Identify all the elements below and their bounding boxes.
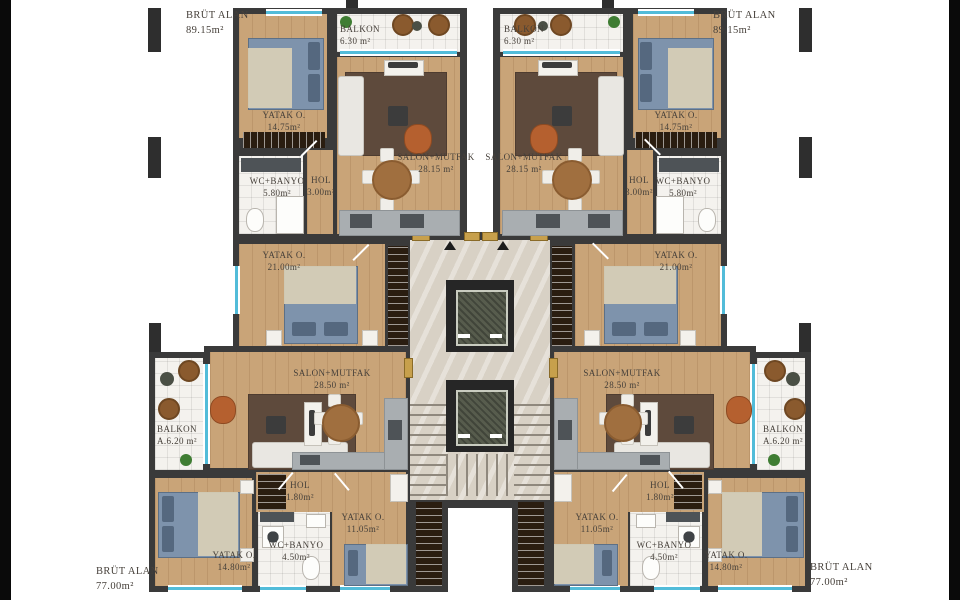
room-label-living-bl: SALON+MUTFAK 28.50 m² bbox=[286, 368, 378, 391]
window bbox=[233, 266, 240, 314]
room-label-bath-tr: WC+BANYO 5.80m² bbox=[650, 176, 716, 199]
armchair bbox=[210, 396, 236, 424]
balcony-chair bbox=[158, 398, 180, 420]
room-name: YATAK O. bbox=[340, 512, 386, 524]
room-label-bath-bl: WC+BANYO 4.50m² bbox=[262, 540, 330, 563]
shaft-wall bbox=[461, 8, 467, 234]
room-label-hall-bl: HOL 1.80m² bbox=[279, 480, 321, 503]
plant bbox=[608, 16, 620, 28]
room-name: YATAK O. bbox=[574, 512, 620, 524]
bed-blanket bbox=[722, 492, 762, 556]
gross-area-label-top-right: BRÜT ALAN 89.15m² bbox=[713, 8, 803, 38]
wardrobe bbox=[388, 246, 408, 346]
elevator-door-mark bbox=[458, 434, 470, 438]
floor-plan: BRÜT ALAN 89.15m² BRÜT ALAN 89.15m² BRÜT… bbox=[0, 0, 960, 600]
window-balcony-door bbox=[340, 49, 457, 56]
room-area: 6.30 m² bbox=[504, 36, 564, 48]
room-area: 1.80m² bbox=[279, 492, 321, 504]
sofa bbox=[598, 76, 624, 156]
room-area: 11.05m² bbox=[574, 524, 620, 536]
gross-area-value: 77.00m² bbox=[96, 579, 186, 594]
room-label-balcony-tl: BALKON 6.30 m² bbox=[340, 24, 400, 47]
window bbox=[654, 585, 700, 592]
wall-stub bbox=[149, 323, 161, 353]
room-label-hall-tr: HOL 3.00m² bbox=[621, 175, 657, 198]
room-area: 5.80m² bbox=[650, 188, 716, 200]
room-area: 14.80m² bbox=[696, 562, 756, 574]
room-label-living-tr: SALON+MUTFAK 28.15 m² bbox=[478, 152, 570, 175]
room-name: WC+BANYO bbox=[630, 540, 698, 552]
room-name: SALON+MUTFAK bbox=[286, 368, 378, 380]
room-name: SALON+MUTFAK bbox=[576, 368, 668, 380]
room-name: WC+BANYO bbox=[650, 176, 716, 188]
room-area: 28.50 m² bbox=[576, 380, 668, 392]
window bbox=[340, 585, 390, 592]
stairs-right-flight bbox=[514, 404, 550, 496]
room-area: 28.50 m² bbox=[286, 380, 378, 392]
room-area: A.6.20 m² bbox=[754, 436, 812, 448]
entry-door-threshold bbox=[404, 358, 413, 378]
wardrobe bbox=[416, 502, 442, 586]
cooktop bbox=[640, 455, 660, 465]
elevator-door-mark bbox=[490, 334, 502, 338]
plant bbox=[180, 454, 192, 466]
room-name: BALKON bbox=[340, 24, 400, 36]
room-name: SALON+MUTFAK bbox=[478, 152, 570, 164]
balcony-table bbox=[786, 372, 800, 386]
room-label-hall-tl: HOL 3.00m² bbox=[303, 175, 339, 198]
room-area: 1.80m² bbox=[639, 492, 681, 504]
room-name: YATAK O. bbox=[637, 110, 715, 122]
gross-area-title: BRÜT ALAN bbox=[96, 564, 186, 579]
room-label-balcony-br: BALKON A.6.20 m² bbox=[754, 424, 812, 447]
room-area: 11.05m² bbox=[340, 524, 386, 536]
wardrobe bbox=[552, 246, 572, 346]
nightstand bbox=[680, 330, 696, 346]
room-name: YATAK O. bbox=[245, 110, 323, 122]
room-label-bath-br: WC+BANYO 4.50m² bbox=[630, 540, 698, 563]
bed-blanket bbox=[366, 544, 406, 584]
kitchen-sink bbox=[388, 420, 402, 440]
window bbox=[718, 585, 792, 592]
sofa bbox=[338, 76, 364, 156]
bed-pillow bbox=[786, 526, 798, 552]
entry-door-threshold bbox=[482, 232, 498, 241]
window-balcony-door bbox=[203, 364, 210, 464]
nightstand bbox=[584, 330, 600, 346]
armchair bbox=[530, 124, 558, 154]
room-area: 4.50m² bbox=[262, 552, 330, 564]
room-name: HOL bbox=[639, 480, 681, 492]
coffee-table bbox=[552, 106, 572, 126]
kitchen-sink bbox=[558, 420, 572, 440]
room-area: 14.80m² bbox=[204, 562, 264, 574]
armchair bbox=[404, 124, 432, 154]
window bbox=[638, 9, 694, 16]
bed-pillow bbox=[602, 550, 612, 576]
shaft-wall bbox=[493, 8, 499, 234]
room-name: SALON+MUTFAK bbox=[390, 152, 482, 164]
bath-sink bbox=[636, 514, 656, 528]
bed-pillow bbox=[640, 42, 652, 70]
wall-stub bbox=[799, 137, 812, 178]
room-area: 5.80m² bbox=[244, 188, 310, 200]
gross-area-label-bottom-right: BRÜT ALAN 77.00m² bbox=[810, 560, 900, 590]
stairs-bottom-flight bbox=[446, 454, 514, 496]
room-label-hall-br: HOL 1.80m² bbox=[639, 480, 681, 503]
bath-vanity bbox=[260, 512, 294, 522]
bath-vanity bbox=[241, 158, 301, 172]
room-label-bedroom2-tl: YATAK O. 21.00m² bbox=[254, 250, 314, 273]
nightstand bbox=[240, 480, 254, 494]
coffee-table bbox=[674, 416, 694, 434]
bed-pillow bbox=[162, 526, 174, 552]
shower bbox=[656, 196, 684, 234]
gross-area-label-bottom-left: BRÜT ALAN 77.00m² bbox=[96, 564, 186, 594]
gross-area-title: BRÜT ALAN bbox=[810, 560, 900, 575]
armchair bbox=[726, 396, 752, 424]
room-name: BALKON bbox=[754, 424, 812, 436]
room-label-bedroom-large-br: YATAK O. 14.80m² bbox=[696, 550, 756, 573]
bed-pillow bbox=[292, 322, 316, 336]
room-label-balcony-bl: BALKON A.6.20 m² bbox=[148, 424, 206, 447]
balcony-table bbox=[160, 372, 174, 386]
room-label-bedroom-tr: YATAK O. 14.75m² bbox=[637, 110, 715, 133]
room-name: HOL bbox=[303, 175, 339, 187]
wall-stub bbox=[148, 8, 161, 52]
bed-pillow bbox=[640, 74, 652, 102]
room-area: 28.15 m² bbox=[390, 164, 482, 176]
nightstand bbox=[708, 480, 722, 494]
gross-area-title: BRÜT ALAN bbox=[713, 8, 803, 23]
cooktop bbox=[400, 214, 424, 228]
cooktop bbox=[536, 214, 560, 228]
room-area: 14.75m² bbox=[637, 122, 715, 134]
bed-blanket bbox=[198, 492, 238, 556]
toilet bbox=[698, 208, 716, 232]
room-name: YATAK O. bbox=[646, 250, 706, 262]
balcony-chair bbox=[428, 14, 450, 36]
direction-arrow-up bbox=[497, 241, 509, 250]
bed-blanket bbox=[668, 48, 712, 108]
room-name: YATAK O. bbox=[254, 250, 314, 262]
room-label-bath-tl: WC+BANYO 5.80m² bbox=[244, 176, 310, 199]
gross-area-value: 89.15m² bbox=[713, 23, 803, 38]
balcony-chair bbox=[178, 360, 200, 382]
room-name: WC+BANYO bbox=[262, 540, 330, 552]
frame-bar-right bbox=[949, 0, 960, 600]
toilet bbox=[246, 208, 264, 232]
room-name: YATAK O. bbox=[696, 550, 756, 562]
coffee-table bbox=[266, 416, 286, 434]
window bbox=[570, 585, 620, 592]
window bbox=[720, 266, 727, 314]
tv bbox=[542, 62, 572, 68]
bed-pillow bbox=[612, 322, 636, 336]
wall-stub bbox=[148, 137, 161, 178]
kitchen-sink bbox=[350, 214, 372, 228]
room-area: 3.00m² bbox=[303, 187, 339, 199]
room-label-living-tl: SALON+MUTFAK 28.15 m² bbox=[390, 152, 482, 175]
entry-door-threshold bbox=[464, 232, 480, 241]
elevator-door-mark bbox=[490, 434, 502, 438]
desk bbox=[390, 474, 408, 502]
room-name: YATAK O. bbox=[204, 550, 264, 562]
room-label-bedroom2-tr: YATAK O. 21.00m² bbox=[646, 250, 706, 273]
kitchen-sink bbox=[588, 214, 610, 228]
room-label-balcony-tr: BALKON 6.30 m² bbox=[504, 24, 564, 47]
gross-area-value: 77.00m² bbox=[810, 575, 900, 590]
gross-area-title: BRÜT ALAN bbox=[186, 8, 276, 23]
balcony-chair bbox=[784, 398, 806, 420]
entry-door-threshold bbox=[549, 358, 558, 378]
room-area: A.6.20 m² bbox=[148, 436, 206, 448]
room-area: 21.00m² bbox=[254, 262, 314, 274]
desk bbox=[554, 474, 572, 502]
bed-pillow bbox=[308, 74, 320, 102]
direction-arrow-up bbox=[444, 241, 456, 250]
wall-stub bbox=[799, 323, 811, 353]
elevator-door-mark bbox=[458, 334, 470, 338]
room-name: BALKON bbox=[504, 24, 564, 36]
room-area: 6.30 m² bbox=[340, 36, 400, 48]
bed-blanket bbox=[248, 48, 292, 108]
gross-area-label-top-left: BRÜT ALAN 89.15m² bbox=[186, 8, 276, 38]
tv bbox=[388, 62, 418, 68]
nightstand bbox=[362, 330, 378, 346]
cooktop bbox=[300, 455, 320, 465]
room-label-bedroom-small-bl: YATAK O. 11.05m² bbox=[340, 512, 386, 535]
room-area: 4.50m² bbox=[630, 552, 698, 564]
shower bbox=[276, 196, 304, 234]
room-name: BALKON bbox=[148, 424, 206, 436]
bath-vanity bbox=[659, 158, 719, 172]
bed-pillow bbox=[644, 322, 668, 336]
stairs-left-flight bbox=[410, 404, 446, 496]
bed-blanket bbox=[554, 544, 594, 584]
room-area: 3.00m² bbox=[621, 187, 657, 199]
bath-sink bbox=[306, 514, 326, 528]
frame-bar-left bbox=[0, 0, 11, 600]
room-label-bedroom-tl: YATAK O. 14.75m² bbox=[245, 110, 323, 133]
room-name: WC+BANYO bbox=[244, 176, 310, 188]
dining-table bbox=[604, 404, 642, 442]
room-name: HOL bbox=[279, 480, 321, 492]
bath-vanity bbox=[666, 512, 700, 522]
balcony-chair bbox=[764, 360, 786, 382]
bed-pillow bbox=[324, 322, 348, 336]
dining-table bbox=[322, 404, 360, 442]
bed-pillow bbox=[162, 496, 174, 522]
bed-pillow bbox=[786, 496, 798, 522]
coffee-table bbox=[388, 106, 408, 126]
room-name: HOL bbox=[621, 175, 657, 187]
window bbox=[260, 585, 306, 592]
bed-pillow bbox=[308, 42, 320, 70]
nightstand bbox=[266, 330, 282, 346]
plant bbox=[768, 454, 780, 466]
gross-area-value: 89.15m² bbox=[186, 23, 276, 38]
wardrobe bbox=[518, 502, 544, 586]
bed-pillow bbox=[348, 550, 358, 576]
room-area: 14.75m² bbox=[245, 122, 323, 134]
room-label-living-br: SALON+MUTFAK 28.50 m² bbox=[576, 368, 668, 391]
balcony-table bbox=[412, 21, 422, 31]
room-area: 28.15 m² bbox=[478, 164, 570, 176]
room-label-bedroom-small-br: YATAK O. 11.05m² bbox=[574, 512, 620, 535]
room-label-bedroom-large-bl: YATAK O. 14.80m² bbox=[204, 550, 264, 573]
room-area: 21.00m² bbox=[646, 262, 706, 274]
window-balcony-door bbox=[503, 49, 620, 56]
